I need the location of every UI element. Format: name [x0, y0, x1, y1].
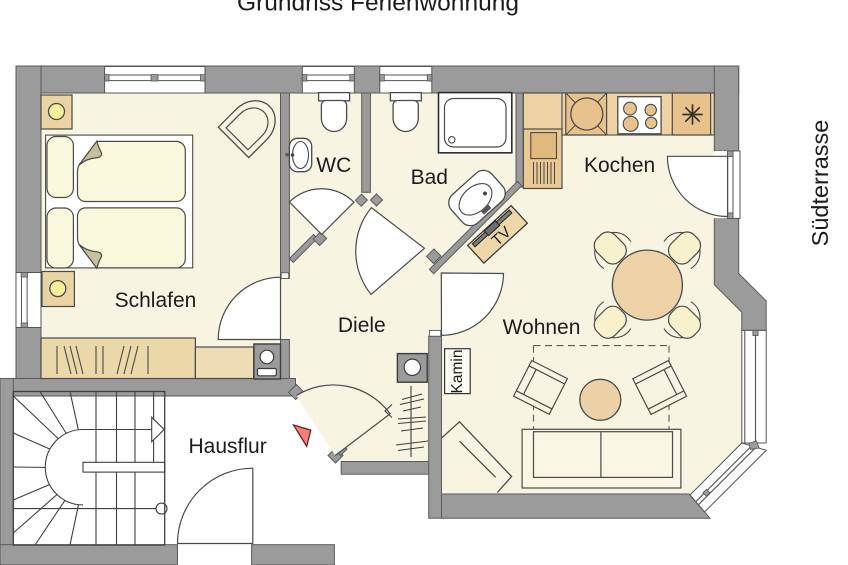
svg-text:Südterrasse: Südterrasse — [807, 120, 833, 247]
svg-text:Wohnen: Wohnen — [503, 316, 581, 339]
svg-text:Schlafen: Schlafen — [115, 289, 197, 312]
svg-text:Bad: Bad — [411, 166, 448, 189]
svg-text:Kochen: Kochen — [584, 154, 655, 177]
svg-text:Grundriss Ferienwohnung: Grundriss Ferienwohnung — [237, 0, 519, 17]
svg-text:Diele: Diele — [338, 314, 386, 337]
svg-text:Kamin: Kamin — [449, 350, 466, 394]
svg-text:Hausflur: Hausflur — [188, 435, 266, 458]
svg-text:WC: WC — [316, 154, 351, 177]
